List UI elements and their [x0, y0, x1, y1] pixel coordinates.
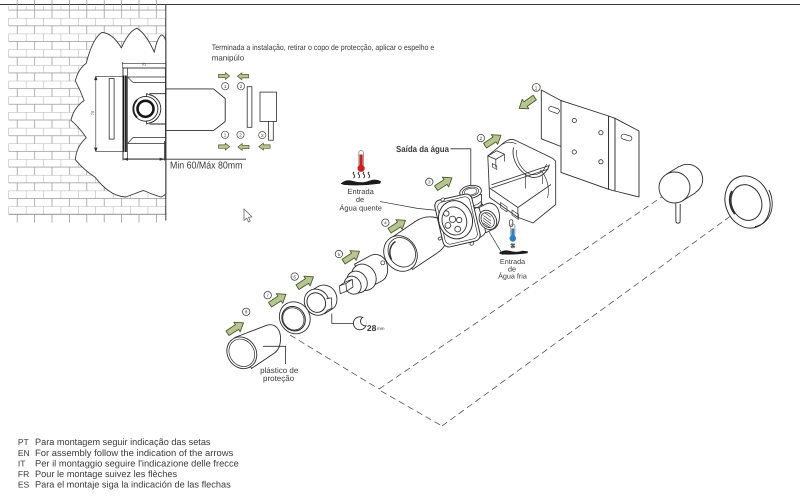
svg-text:28: 28	[367, 323, 377, 333]
svg-text:1: 1	[224, 133, 227, 138]
svg-text:3: 3	[428, 180, 431, 185]
svg-text:EN: EN	[18, 448, 30, 458]
svg-text:Per il montaggio seguire l'ind: Per il montaggio seguire l'indicazione d…	[35, 459, 239, 469]
svg-text:6: 6	[293, 274, 296, 279]
svg-text:2: 2	[239, 133, 242, 138]
svg-text:FR: FR	[18, 469, 29, 479]
svg-text:1: 1	[535, 85, 538, 90]
svg-text:Min 60/Máx 80mm: Min 60/Máx 80mm	[170, 161, 243, 172]
svg-text:Terminada a instalação, retira: Terminada a instalação, retirar o copo d…	[212, 43, 435, 52]
svg-text:Pour le montage suivez les flè: Pour le montage suivez les flèches	[35, 469, 177, 479]
svg-text:Água quente: Água quente	[339, 203, 382, 212]
svg-text:For assembly follow the indica: For assembly follow the indication of th…	[35, 448, 234, 458]
svg-text:8: 8	[245, 310, 248, 315]
svg-text:2: 2	[480, 136, 483, 141]
svg-text:Saída da água: Saída da água	[396, 144, 449, 154]
svg-text:PT: PT	[18, 437, 29, 447]
svg-text:3: 3	[261, 133, 264, 138]
svg-text:mm: mm	[377, 326, 385, 331]
svg-text:proteção: proteção	[263, 374, 295, 383]
svg-text:2: 2	[240, 84, 243, 89]
svg-text:ES: ES	[18, 479, 30, 489]
svg-text:51: 51	[142, 63, 146, 67]
svg-text:5: 5	[338, 252, 341, 257]
svg-text:Para montagem seguir indicação: Para montagem seguir indicação das setas	[35, 437, 211, 447]
svg-text:IT: IT	[18, 459, 26, 469]
svg-text:4: 4	[384, 221, 387, 226]
svg-text:7: 7	[266, 293, 269, 298]
svg-text:1: 1	[224, 84, 227, 89]
svg-text:manipúlo: manipúlo	[212, 54, 245, 63]
svg-text:Água fria: Água fria	[498, 271, 527, 280]
svg-text:Para el montaje siga la indica: Para el montaje siga la indicación de la…	[35, 479, 231, 489]
svg-text:70: 70	[91, 111, 95, 115]
